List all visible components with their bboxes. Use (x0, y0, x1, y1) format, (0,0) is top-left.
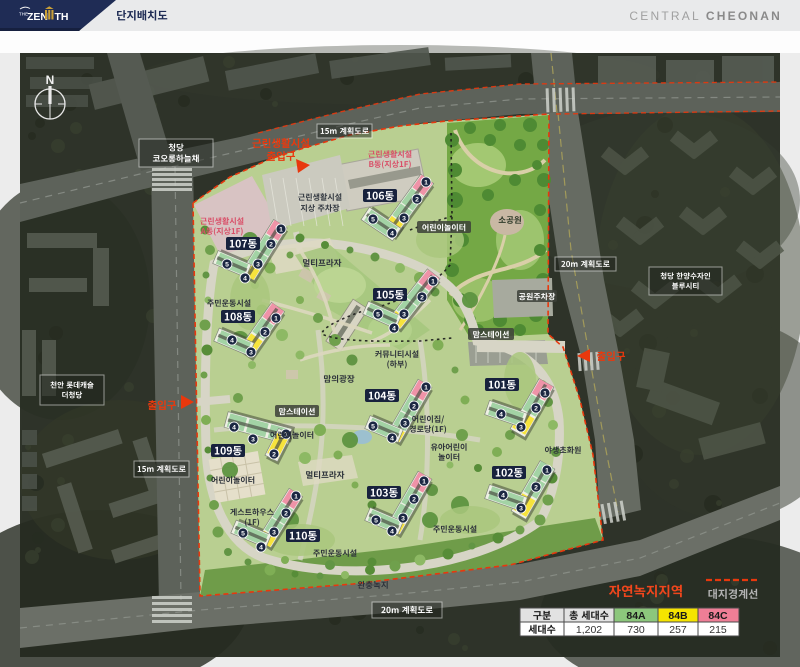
svg-text:4: 4 (243, 275, 247, 282)
svg-text:2: 2 (269, 241, 273, 248)
svg-text:84C: 84C (708, 610, 728, 622)
svg-text:2: 2 (534, 405, 538, 412)
svg-text:3: 3 (401, 515, 405, 522)
svg-text:5: 5 (376, 311, 380, 318)
svg-text:2: 2 (415, 196, 419, 203)
svg-text:N: N (46, 73, 55, 87)
svg-text:2: 2 (412, 403, 416, 410)
svg-text:2: 2 (284, 510, 288, 517)
svg-text:1: 1 (543, 390, 547, 397)
svg-text:4: 4 (392, 325, 396, 332)
svg-text:5: 5 (371, 216, 375, 223)
svg-text:TH: TH (55, 11, 69, 23)
svg-text:730: 730 (627, 624, 645, 636)
svg-text:1: 1 (545, 467, 549, 474)
svg-text:4: 4 (499, 411, 503, 418)
svg-text:3: 3 (251, 436, 255, 443)
svg-text:3: 3 (519, 505, 523, 512)
svg-text:84B: 84B (668, 610, 688, 622)
svg-text:2: 2 (263, 329, 267, 336)
svg-text:4: 4 (390, 435, 394, 442)
svg-text:3: 3 (403, 420, 407, 427)
svg-text:3: 3 (402, 311, 406, 318)
svg-text:4: 4 (501, 492, 505, 499)
svg-text:2: 2 (412, 496, 416, 503)
svg-text:5: 5 (374, 517, 378, 524)
svg-text:5: 5 (371, 423, 375, 430)
svg-text:1: 1 (274, 315, 278, 322)
svg-text:3: 3 (256, 261, 260, 268)
svg-text:1: 1 (422, 478, 426, 485)
svg-text:84A: 84A (626, 610, 646, 622)
svg-text:3: 3 (272, 529, 276, 536)
svg-text:1: 1 (424, 384, 428, 391)
svg-text:3: 3 (519, 424, 523, 431)
svg-text:1,202: 1,202 (576, 624, 602, 636)
svg-text:3: 3 (402, 215, 406, 222)
svg-text:5: 5 (241, 530, 245, 537)
svg-text:1: 1 (431, 278, 435, 285)
svg-text:4: 4 (390, 230, 394, 237)
svg-text:215: 215 (709, 624, 727, 636)
svg-text:2: 2 (534, 484, 538, 491)
svg-text:ZEN: ZEN (27, 11, 48, 23)
svg-text:3: 3 (249, 349, 253, 356)
svg-text:4: 4 (230, 337, 234, 344)
svg-text:2: 2 (272, 451, 276, 458)
svg-text:2: 2 (420, 294, 424, 301)
svg-text:4: 4 (259, 544, 263, 551)
svg-text:257: 257 (669, 624, 687, 636)
svg-text:1: 1 (424, 179, 428, 186)
svg-text:1: 1 (294, 493, 298, 500)
svg-text:4: 4 (232, 424, 236, 431)
svg-text:CENTRAL CHEONAN: CENTRAL CHEONAN (629, 9, 782, 23)
svg-text:4: 4 (390, 528, 394, 535)
svg-text:5: 5 (225, 261, 229, 268)
svg-text:1: 1 (279, 226, 283, 233)
